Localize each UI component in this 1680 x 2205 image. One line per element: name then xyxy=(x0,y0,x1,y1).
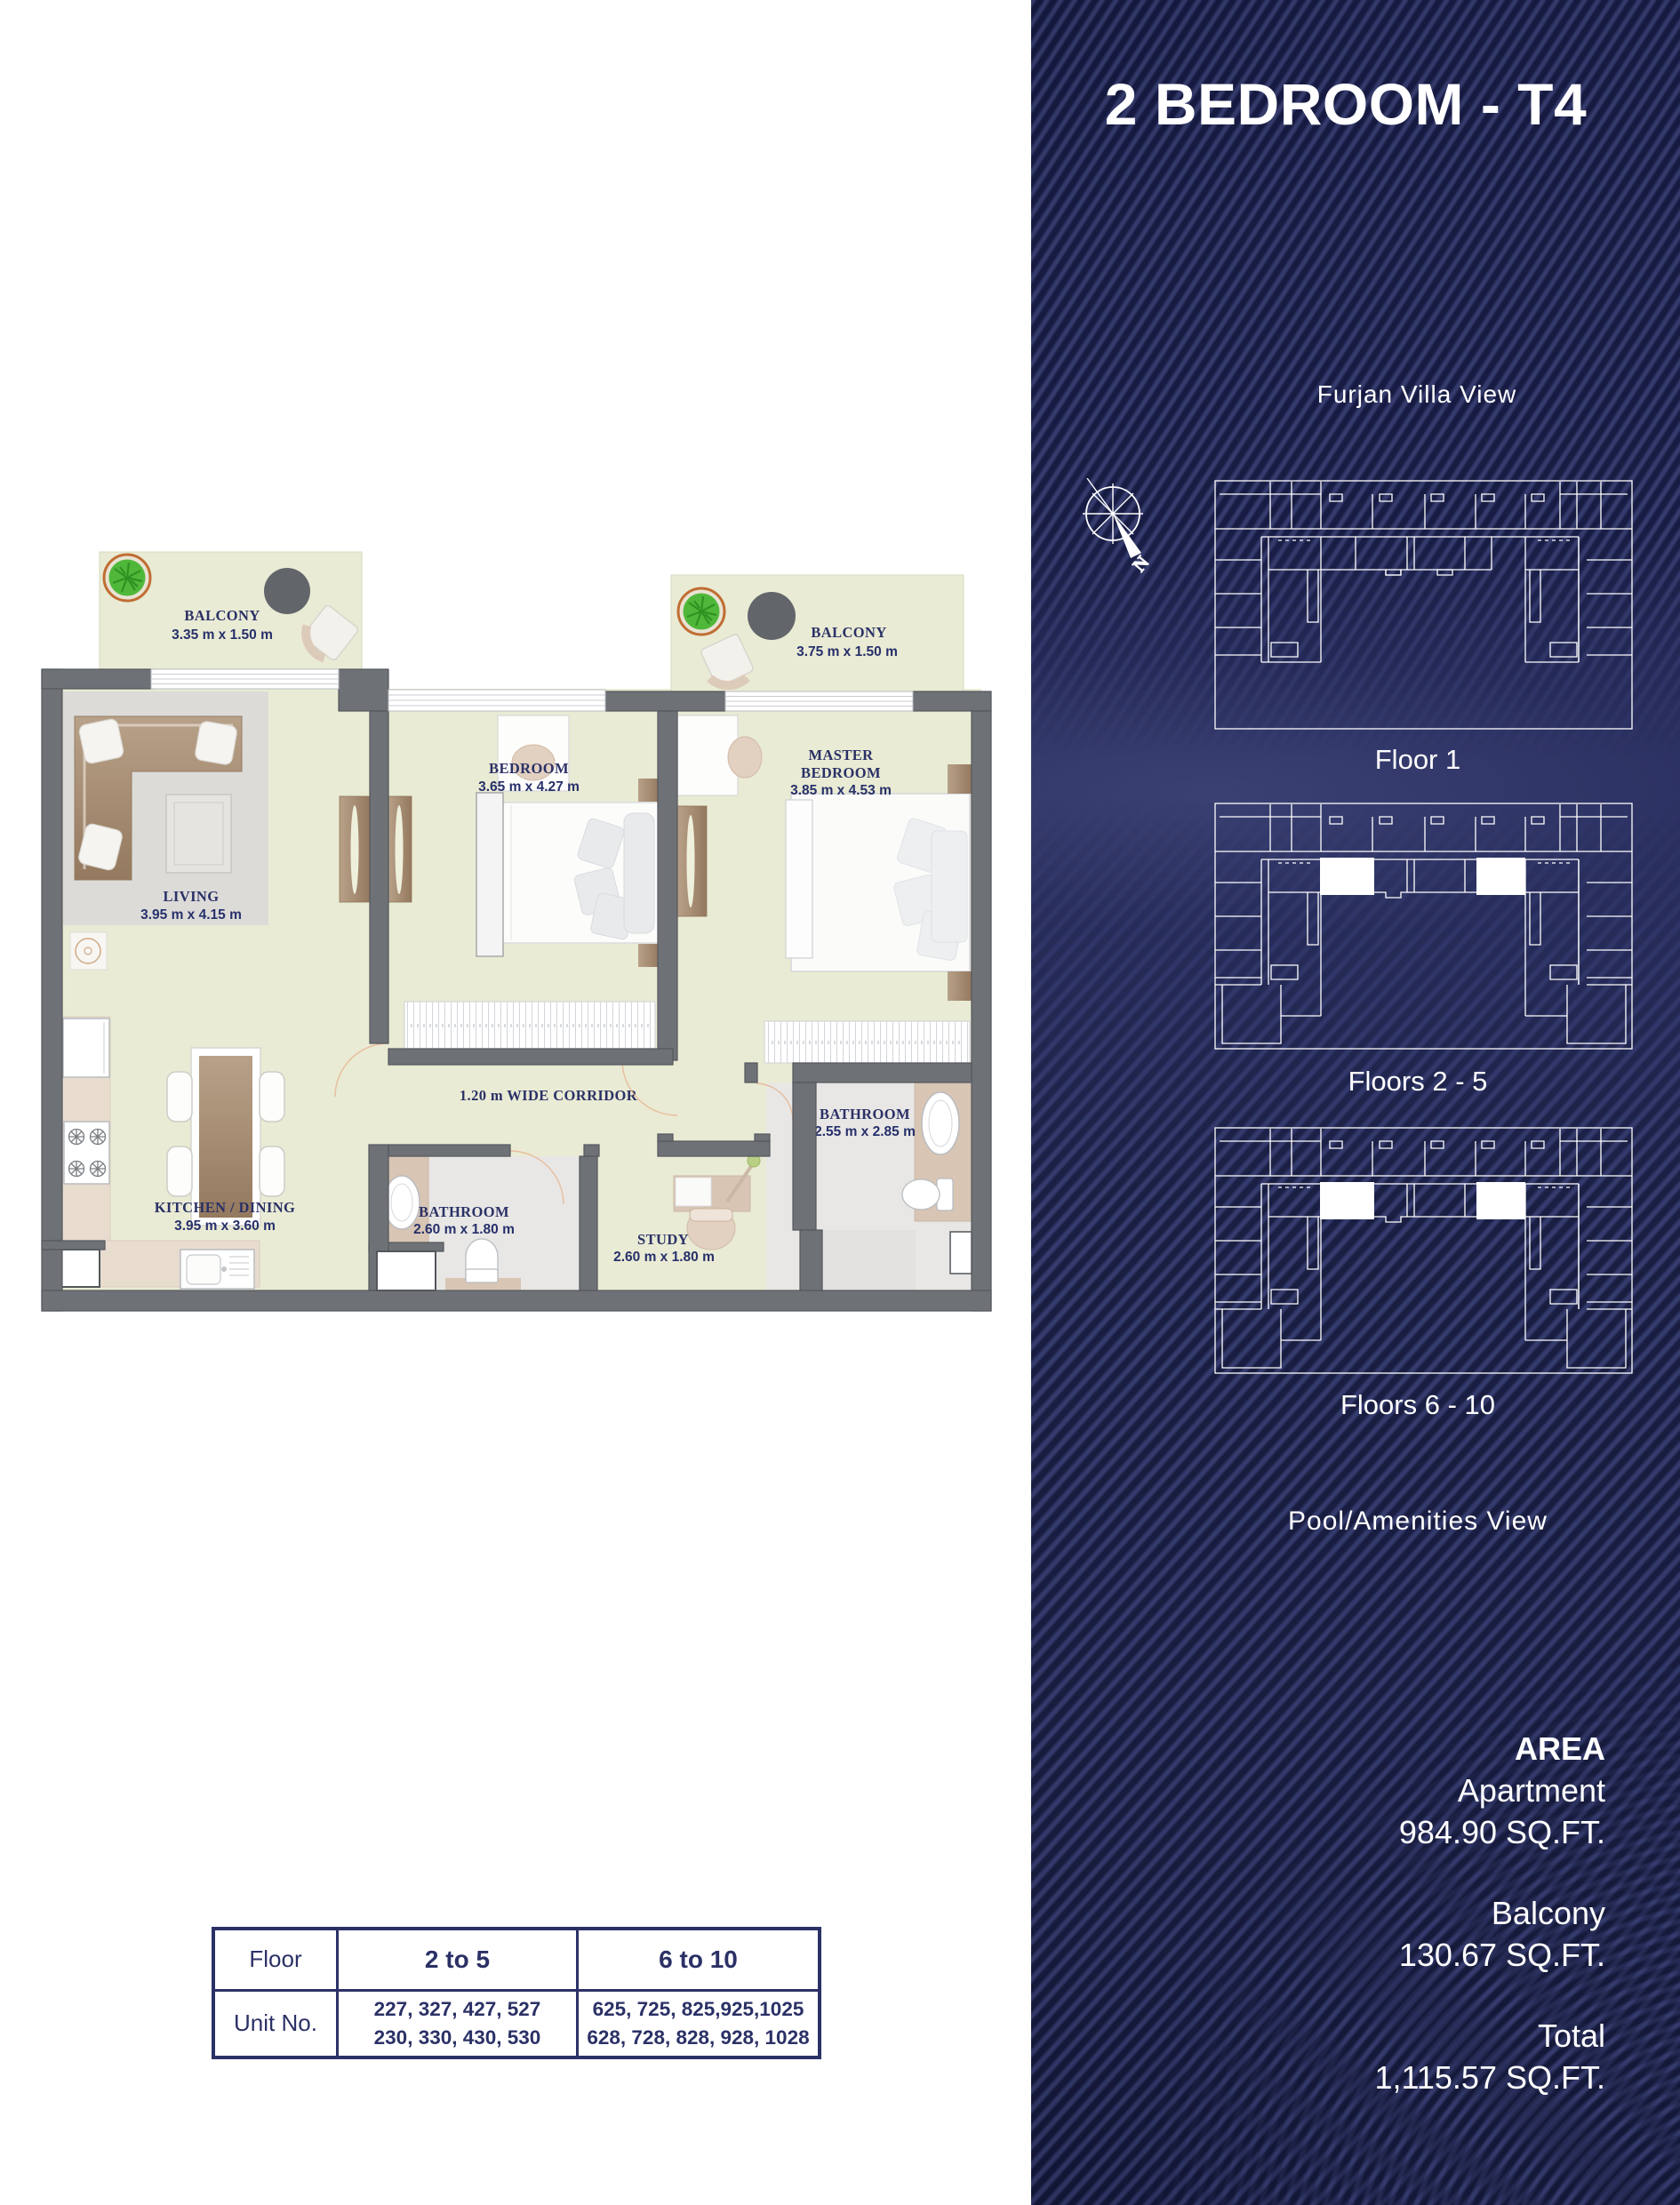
svg-text:BALCONY: BALCONY xyxy=(184,607,260,624)
svg-text:BATHROOM: BATHROOM xyxy=(820,1106,910,1122)
svg-text:BALCONY: BALCONY xyxy=(811,624,886,641)
svg-text:2.60 m x 1.80 m: 2.60 m x 1.80 m xyxy=(613,1250,715,1265)
svg-text:3.75 m x 1.50 m: 3.75 m x 1.50 m xyxy=(796,644,898,659)
svg-text:3.65 m x 4.27 m: 3.65 m x 4.27 m xyxy=(478,779,580,795)
svg-text:MASTER: MASTER xyxy=(809,747,875,763)
svg-text:BEDROOM: BEDROOM xyxy=(489,760,569,777)
svg-text:LIVING: LIVING xyxy=(164,888,220,905)
svg-text:1.20 m WIDE CORRIDOR: 1.20 m WIDE CORRIDOR xyxy=(460,1087,638,1104)
svg-text:3.35 m x 1.50 m: 3.35 m x 1.50 m xyxy=(172,627,273,643)
svg-text:2.60 m x 1.80 m: 2.60 m x 1.80 m xyxy=(413,1222,515,1237)
svg-text:3.85 m x 4.53 m: 3.85 m x 4.53 m xyxy=(790,783,892,798)
svg-text:STUDY: STUDY xyxy=(637,1231,689,1248)
svg-text:3.95 m x 4.15 m: 3.95 m x 4.15 m xyxy=(140,907,242,923)
svg-text:2.55 m x 2.85 m: 2.55 m x 2.85 m xyxy=(814,1124,916,1139)
svg-text:BATHROOM: BATHROOM xyxy=(419,1203,509,1220)
svg-text:KITCHEN / DINING: KITCHEN / DINING xyxy=(155,1199,296,1216)
svg-text:BEDROOM: BEDROOM xyxy=(801,764,881,781)
svg-text:3.95 m x 3.60 m: 3.95 m x 3.60 m xyxy=(174,1218,276,1234)
